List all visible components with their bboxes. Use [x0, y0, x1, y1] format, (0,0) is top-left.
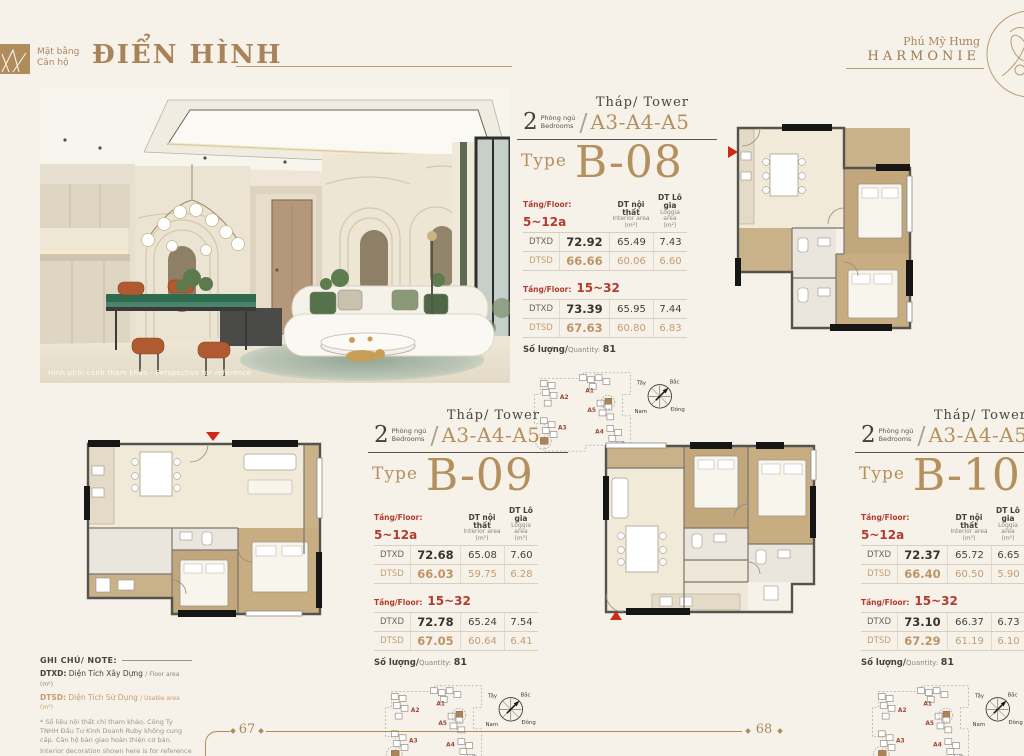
photo-caption: Hình phối cảnh tham khảo - Perspective f… — [48, 369, 251, 377]
note-dtsd: DTSD: Diện Tích Sử Dụng / Usable area (m… — [40, 693, 192, 713]
table-row: DTXD72.92 65.497.43 — [523, 232, 687, 251]
note-dtxd: DTXD: Diện Tích Xây Dựng / Floor area (m… — [40, 669, 192, 689]
type-label: Type — [372, 464, 418, 484]
notes-block: GHI CHÚ/ NOTE: DTXD: Diện Tích Xây Dựng … — [40, 656, 192, 756]
svg-text:Nam: Nam — [973, 722, 986, 728]
svg-text:A1: A1 — [436, 701, 445, 707]
table-row: DTXD73.39 65.957.44 — [523, 299, 687, 318]
notes-title: GHI CHÚ/ NOTE: — [40, 656, 117, 665]
table-row: DTSD66.40 60.505.90 — [861, 564, 1024, 584]
divider-slash: / — [917, 424, 925, 448]
bedroom-caption: Phòng ngủ Bedrooms — [392, 427, 427, 443]
divider-slash: / — [430, 424, 438, 448]
svg-text:Đông: Đông — [522, 719, 536, 726]
unit-card-b09: Tháp/ Tower 2 Phòng ngủ Bedrooms / A3-A4… — [368, 408, 568, 756]
table-row: DTXD73.10 66.376.73 — [861, 612, 1024, 631]
tower-codes: A3-A4-A5 — [441, 424, 540, 447]
quantity: Số lượng/Quantity: 81 — [861, 657, 1024, 668]
svg-text:A5: A5 — [438, 721, 447, 727]
footer-rule — [266, 731, 742, 732]
table-row: DTXD72.37 65.726.65 — [861, 545, 1024, 564]
diamond-ornament — [777, 728, 783, 734]
bedroom-count: 2 — [374, 424, 389, 447]
bedroom-count: 2 — [861, 424, 876, 447]
svg-text:Tây: Tây — [636, 380, 647, 387]
unit-card-b10: Tháp/ Tower 2 Phòng ngủ Bedrooms / A3-A4… — [855, 408, 1024, 756]
svg-text:Nam: Nam — [635, 409, 648, 415]
floor-plan-b09 — [76, 430, 332, 620]
table-row: DTXD72.78 65.247.54 — [374, 612, 538, 631]
floral-emblem-icon — [982, 6, 1024, 102]
table-row: DTXD72.68 65.087.60 — [374, 545, 538, 564]
tower-label: Tháp/ Tower — [517, 95, 717, 111]
area-table: Tầng/Floor: 5~12a DT nội thất Interior a… — [374, 505, 538, 651]
interior-photo: Hình phối cảnh tham khảo - Perspective f… — [40, 88, 510, 383]
page-number-left: 67 — [237, 722, 257, 737]
page-subtitle: Mặt bằng Căn hộ — [37, 47, 79, 70]
tower-codes: A3-A4-A5 — [928, 424, 1024, 447]
svg-text:Đông: Đông — [1009, 719, 1023, 726]
disclaimer-en: Interior decoration shown here is for re… — [40, 747, 192, 756]
svg-text:A3: A3 — [409, 739, 418, 745]
compass-icon: Tây Bắc Nam Đông — [635, 379, 685, 415]
notes-title-rule — [122, 660, 192, 661]
footer-corner-left — [205, 731, 230, 756]
table-row: DTSD66.03 59.756.28 — [374, 564, 538, 584]
disclaimer-vi: * Số liệu nội thất chỉ tham khảo, Công T… — [40, 718, 192, 744]
quantity: Số lượng/Quantity: 81 — [374, 657, 568, 668]
svg-text:Tây: Tây — [974, 693, 985, 700]
diamond-ornament — [745, 728, 751, 734]
page-number-right: 68 — [754, 722, 774, 737]
svg-text:Bắc: Bắc — [1008, 692, 1018, 699]
type-code: B-08 — [575, 142, 683, 184]
svg-text:A5: A5 — [925, 721, 934, 727]
svg-text:A2: A2 — [560, 395, 569, 401]
svg-text:A1: A1 — [585, 388, 594, 394]
svg-text:Nam: Nam — [486, 722, 499, 728]
table-row: DTSD66.66 60.066.60 — [523, 251, 687, 271]
type-label: Type — [521, 151, 567, 171]
unit-card-b08: Tháp/ Tower 2 Phòng ngủ Bedrooms / A3-A4… — [517, 95, 717, 457]
interior-render — [40, 88, 510, 383]
compass-icon: Tây Bắc Nam Đông — [486, 692, 536, 728]
floor-plan-b08 — [726, 112, 922, 334]
divider-slash: / — [579, 111, 587, 135]
table-row: DTSD67.29 61.196.10 — [861, 631, 1024, 651]
table-row: DTSD67.05 60.646.41 — [374, 631, 538, 651]
subtitle-line1: Mặt bằng — [37, 47, 79, 58]
bedroom-caption: Phòng ngủ Bedrooms — [879, 427, 914, 443]
tower-codes: A3-A4-A5 — [590, 111, 689, 134]
tower-label: Tháp/ Tower — [368, 408, 568, 424]
quantity: Số lượng/Quantity: 81 — [523, 344, 717, 355]
svg-text:A3: A3 — [896, 739, 905, 745]
svg-text:A4: A4 — [933, 743, 942, 749]
table-row: DTSD67.63 60.806.83 — [523, 318, 687, 338]
bedroom-caption: Phòng ngủ Bedrooms — [541, 114, 576, 130]
type-label: Type — [859, 464, 905, 484]
site-keyplan: A2A1 A5A3 A4 Tây Bắc Nam Đông — [857, 676, 1024, 756]
svg-text:A4: A4 — [446, 743, 455, 749]
brand-mark-icon — [0, 44, 30, 74]
type-code: B-09 — [426, 455, 534, 497]
brochure-page: Mặt bằng Căn hộ ĐIỂN HÌNH Phú Mỹ Hưng HA… — [0, 0, 1024, 756]
diamond-ornament — [258, 728, 264, 734]
brand-divider — [846, 68, 984, 69]
svg-text:A2: A2 — [898, 708, 907, 714]
svg-text:A1: A1 — [923, 701, 932, 707]
site-keyplan: A2A1 A5A3 A4 Tây Bắc Nam Đông — [370, 676, 538, 756]
diamond-ornament — [230, 728, 236, 734]
area-table: Tầng/Floor: 5~12a DT nội thất Interior a… — [861, 505, 1024, 651]
svg-text:Bắc: Bắc — [670, 379, 680, 386]
svg-text:Đông: Đông — [671, 406, 685, 413]
type-code: B-10 — [913, 455, 1021, 497]
subtitle-line2: Căn hộ — [37, 58, 79, 69]
brand-name: Phú Mỹ Hưng — [858, 35, 980, 48]
svg-text:Tây: Tây — [487, 693, 498, 700]
tower-label: Tháp/ Tower — [855, 408, 1024, 424]
project-name: HARMONIE — [850, 49, 980, 64]
header-divider — [236, 66, 512, 67]
area-table: Tầng/Floor: 5~12a DT nội thất Interior a… — [523, 192, 687, 338]
svg-text:A2: A2 — [411, 708, 420, 714]
compass-icon: Tây Bắc Nam Đông — [973, 692, 1023, 728]
floor-plan-b10 — [596, 434, 824, 622]
svg-text:A5: A5 — [587, 408, 596, 414]
svg-text:Bắc: Bắc — [521, 692, 531, 699]
bedroom-count: 2 — [523, 111, 538, 134]
